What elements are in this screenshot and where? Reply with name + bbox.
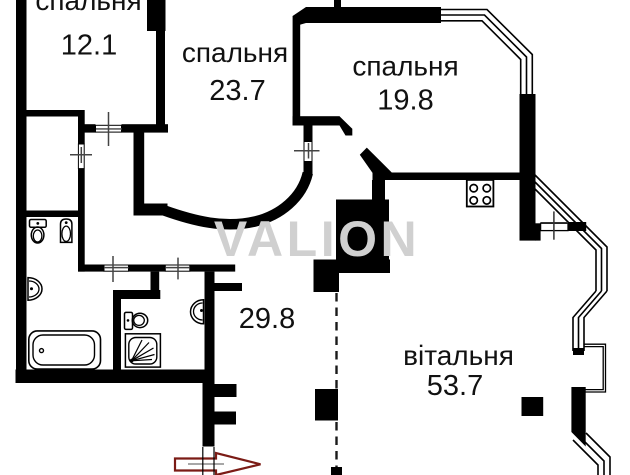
- svg-text:12.1: 12.1: [61, 30, 117, 62]
- svg-text:19.8: 19.8: [377, 85, 433, 117]
- svg-text:спальня: спальня: [35, 0, 141, 16]
- svg-text:23.7: 23.7: [209, 75, 265, 107]
- svg-text:спальня: спальня: [182, 37, 288, 68]
- svg-text:спальня: спальня: [352, 51, 458, 82]
- svg-text:вітальня: вітальня: [403, 340, 514, 371]
- svg-text:VALION: VALION: [214, 211, 420, 267]
- svg-text:29.8: 29.8: [239, 303, 295, 335]
- svg-text:53.7: 53.7: [427, 370, 483, 402]
